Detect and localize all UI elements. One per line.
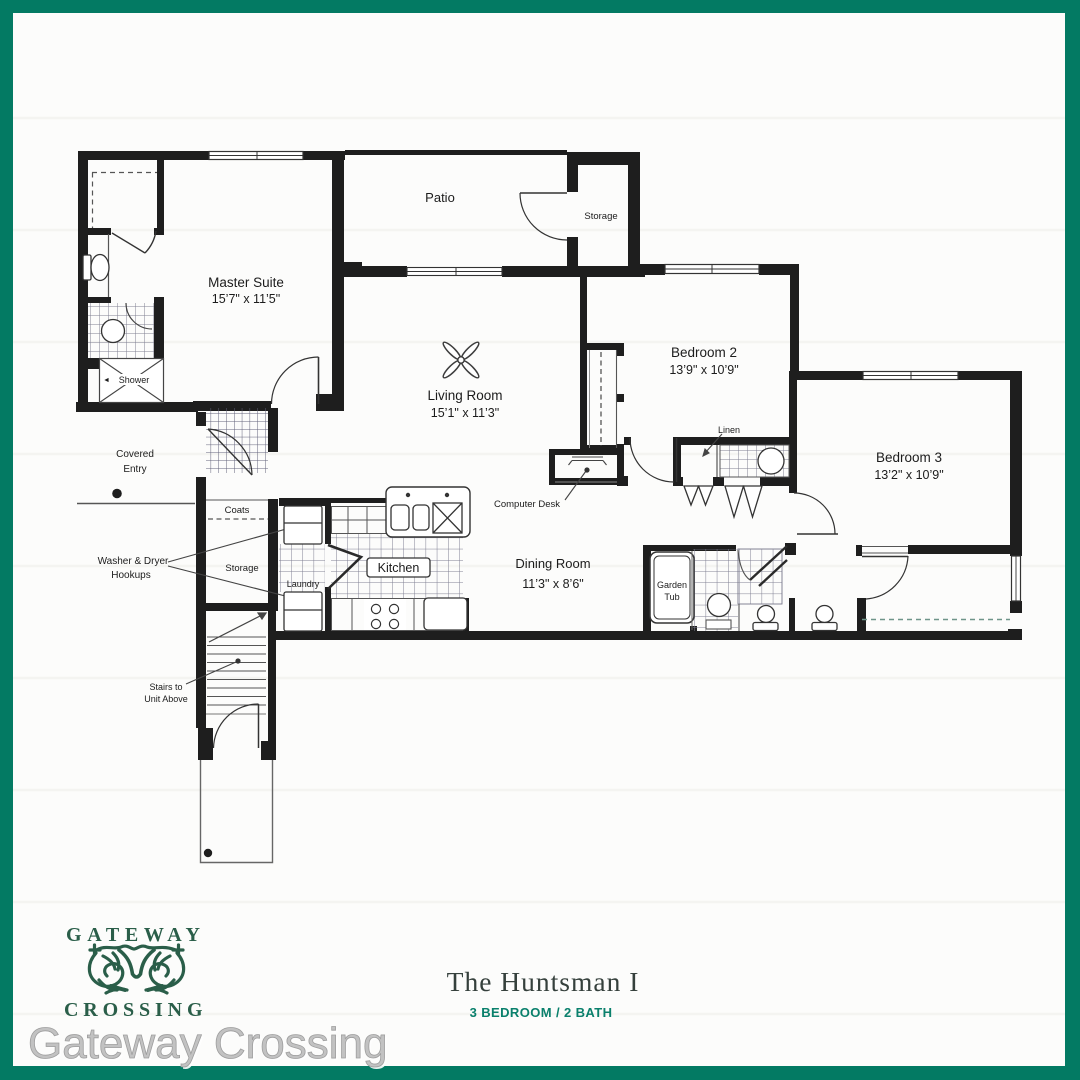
- svg-text:Living Room: Living Room: [427, 388, 502, 403]
- svg-text:Shower: Shower: [119, 375, 150, 385]
- svg-text:Computer Desk: Computer Desk: [494, 499, 560, 510]
- svg-text:13’9" x 10’9": 13’9" x 10’9": [669, 363, 738, 377]
- svg-text:Laundry: Laundry: [287, 579, 320, 589]
- svg-text:Hookups: Hookups: [111, 570, 150, 581]
- svg-text:Garden: Garden: [657, 580, 687, 590]
- svg-text:CROSSING: CROSSING: [64, 999, 204, 1021]
- svg-text:Storage: Storage: [584, 211, 617, 222]
- svg-text:Patio: Patio: [425, 190, 455, 205]
- svg-text:Entry: Entry: [123, 464, 146, 475]
- svg-text:Covered: Covered: [116, 449, 154, 460]
- svg-text:15’1" x 11’3": 15’1" x 11’3": [431, 406, 499, 420]
- svg-text:Washer & Dryer: Washer & Dryer: [98, 556, 169, 567]
- svg-text:The Huntsman I: The Huntsman I: [447, 966, 640, 997]
- svg-text:15’7" x 11’5": 15’7" x 11’5": [212, 292, 280, 306]
- svg-text:13’2" x 10’9": 13’2" x 10’9": [874, 468, 943, 482]
- svg-text:Gateway Crossing: Gateway Crossing: [28, 1019, 387, 1068]
- svg-text:Bedroom 3: Bedroom 3: [876, 450, 942, 465]
- svg-text:Unit Above: Unit Above: [144, 694, 188, 704]
- svg-text:Linen: Linen: [718, 425, 740, 435]
- svg-text:◄: ◄: [103, 377, 110, 384]
- svg-text:Master Suite: Master Suite: [208, 275, 284, 290]
- svg-text:3 BEDROOM / 2 BATH: 3 BEDROOM / 2 BATH: [470, 1005, 613, 1020]
- svg-text:Stairs to: Stairs to: [149, 682, 182, 692]
- svg-text:11’3" x 8’6": 11’3" x 8’6": [522, 577, 583, 591]
- svg-text:Coats: Coats: [225, 505, 250, 516]
- svg-text:Bedroom 2: Bedroom 2: [671, 345, 737, 360]
- svg-text:Tub: Tub: [664, 592, 679, 602]
- svg-text:Dining Room: Dining Room: [515, 556, 590, 571]
- svg-text:GATEWAY: GATEWAY: [66, 924, 202, 946]
- svg-text:Storage: Storage: [225, 563, 258, 574]
- svg-text:Kitchen: Kitchen: [378, 561, 420, 575]
